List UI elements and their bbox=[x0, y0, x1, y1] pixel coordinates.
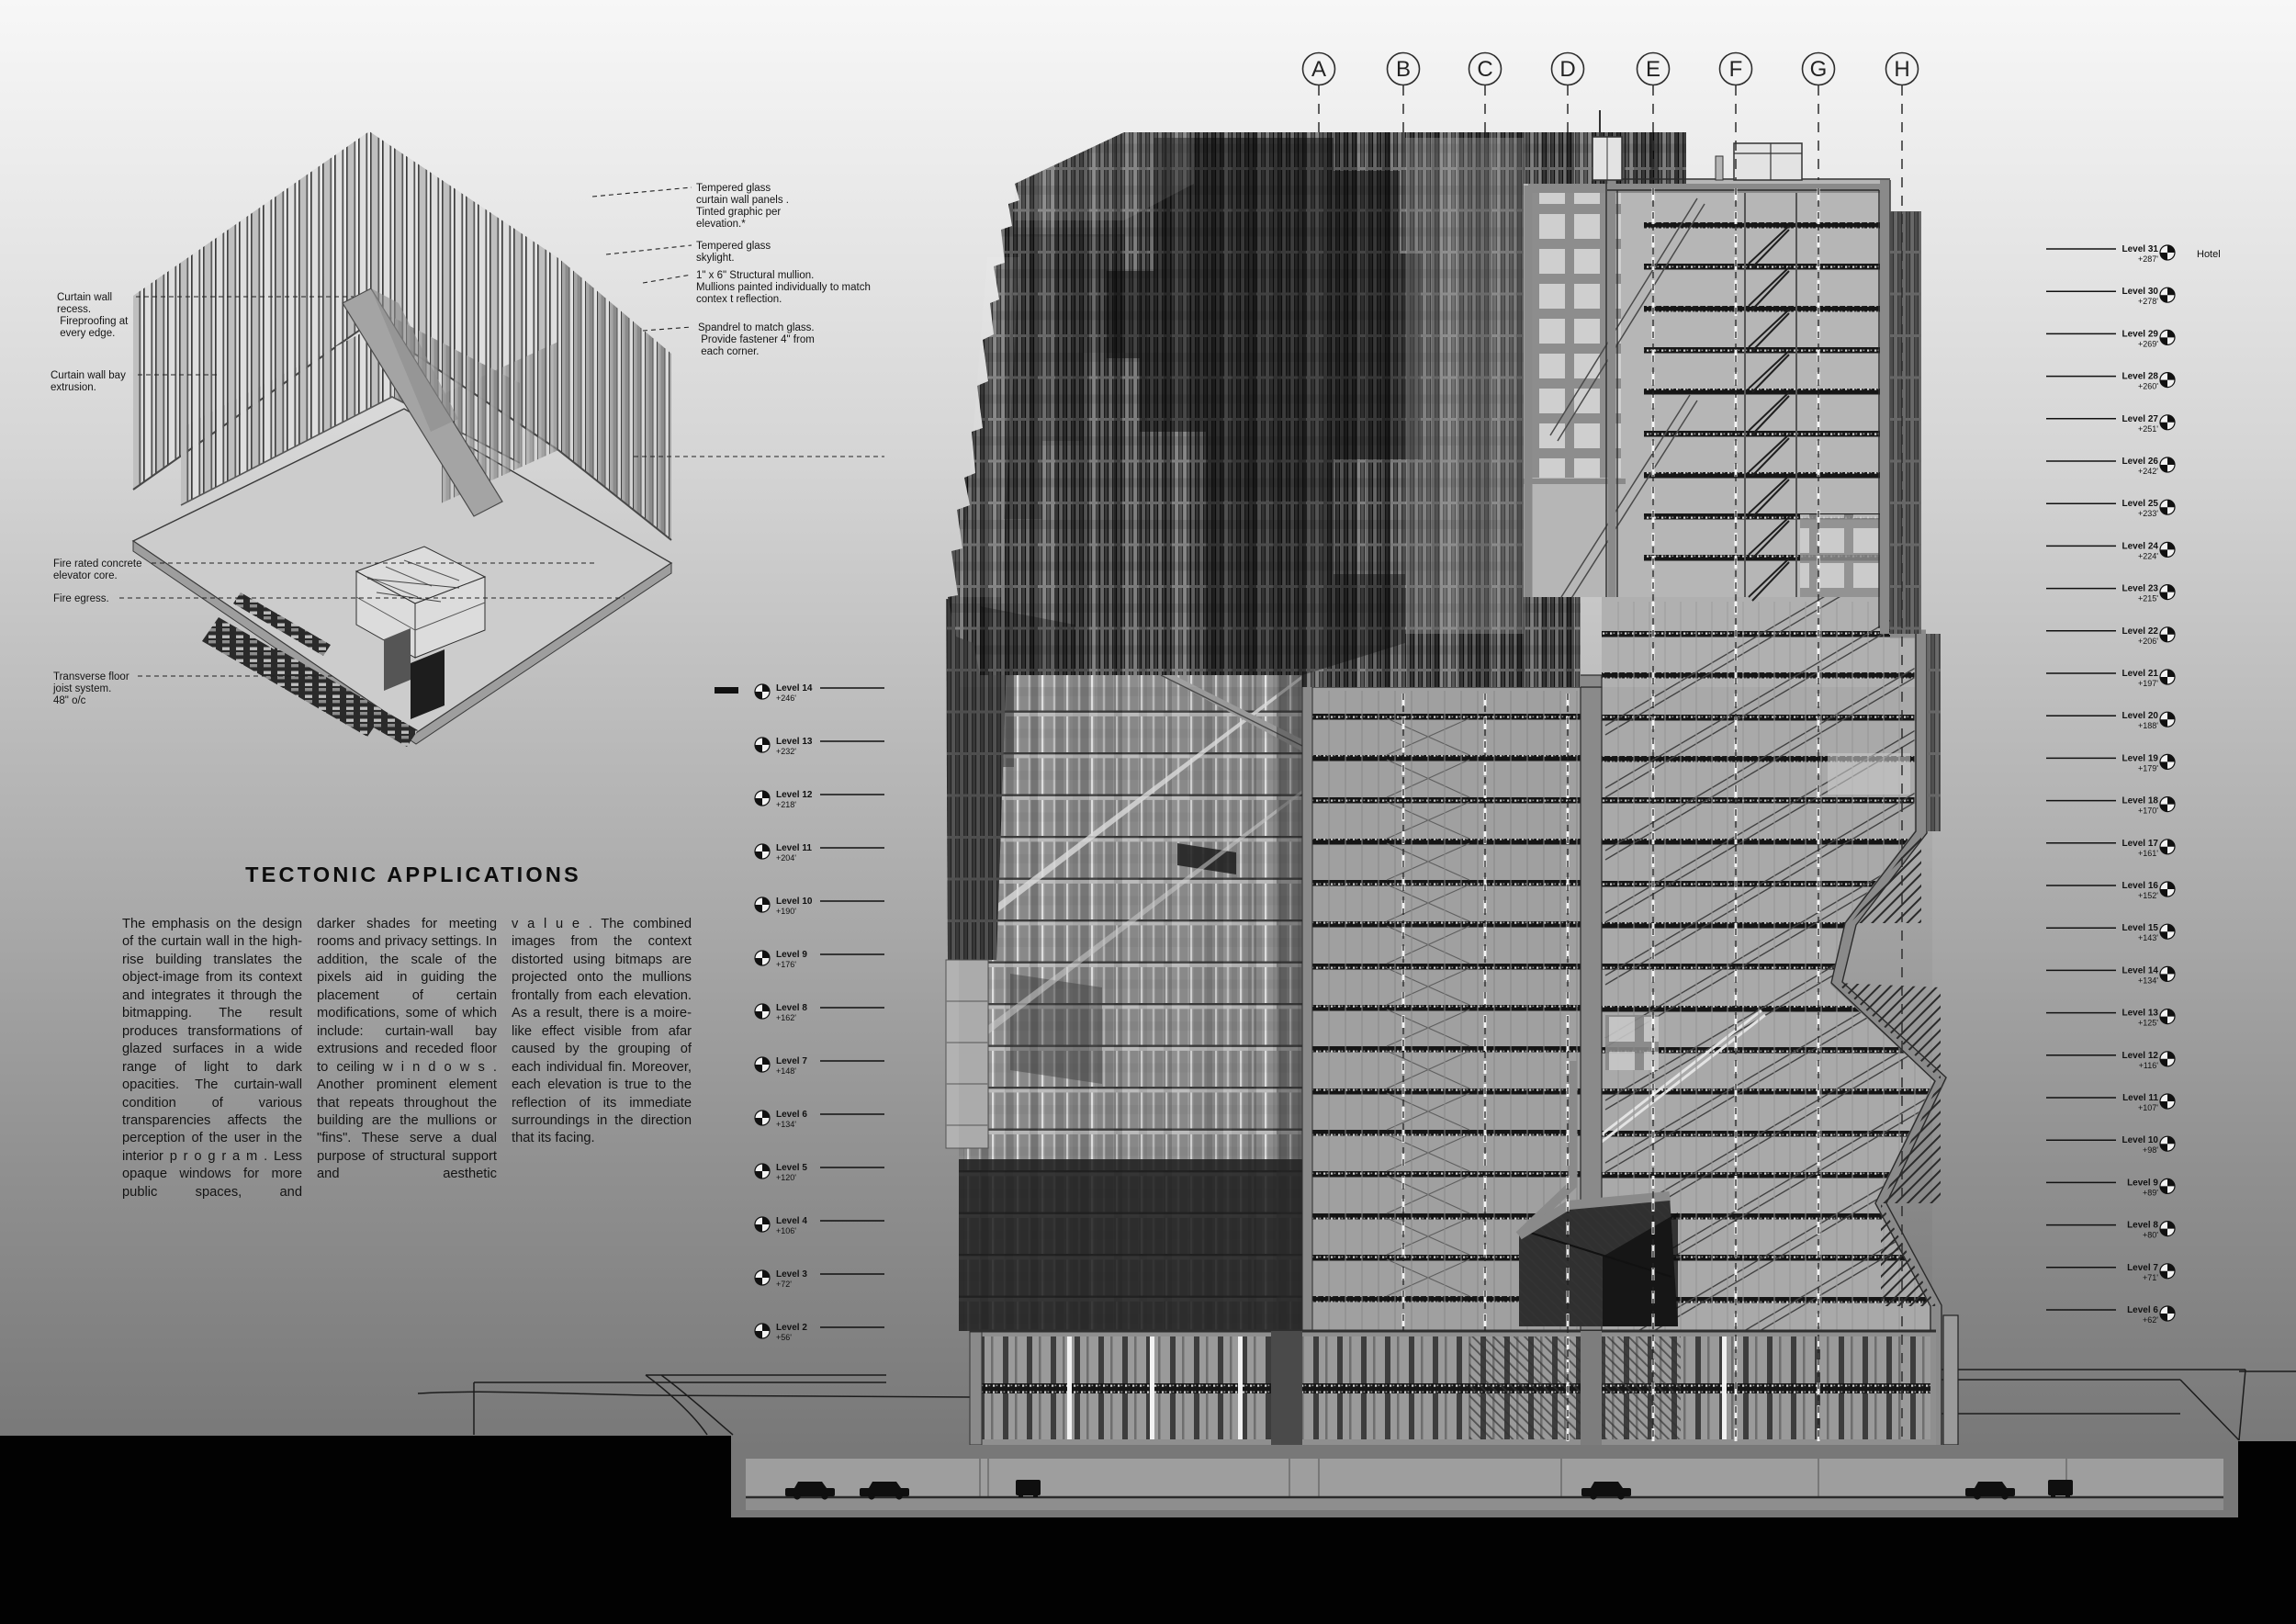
svg-text:Level 10: Level 10 bbox=[776, 897, 813, 907]
svg-text:+218': +218' bbox=[776, 800, 796, 809]
svg-text:Tempered glassskylight.: Tempered glassskylight. bbox=[696, 241, 771, 264]
svg-text:G: G bbox=[1810, 57, 1828, 82]
svg-text:+134': +134' bbox=[2138, 976, 2158, 985]
svg-text:Level 16: Level 16 bbox=[2122, 881, 2159, 891]
svg-text:Level 12: Level 12 bbox=[2122, 1051, 2159, 1061]
svg-text:Fire egress.: Fire egress. bbox=[53, 593, 109, 604]
svg-text:+176': +176' bbox=[776, 960, 796, 969]
svg-text:Level 23: Level 23 bbox=[2122, 584, 2159, 594]
svg-text:Level 8: Level 8 bbox=[2127, 1221, 2158, 1231]
svg-text:Fire rated concreteelevator co: Fire rated concreteelevator core. bbox=[53, 558, 142, 581]
svg-text:+204': +204' bbox=[776, 853, 796, 863]
svg-text:Level 21: Level 21 bbox=[2122, 669, 2159, 679]
svg-text:Level 27: Level 27 bbox=[2122, 414, 2159, 424]
svg-text:Level 20: Level 20 bbox=[2122, 711, 2159, 721]
svg-text:Level 9: Level 9 bbox=[2127, 1178, 2158, 1188]
svg-text:+120': +120' bbox=[776, 1173, 796, 1182]
svg-text:+233': +233' bbox=[2138, 509, 2158, 518]
svg-text:Level 6: Level 6 bbox=[2127, 1305, 2158, 1315]
svg-text:Level 14: Level 14 bbox=[776, 683, 813, 694]
svg-text:+278': +278' bbox=[2138, 297, 2158, 306]
svg-text:Level 15: Level 15 bbox=[2122, 923, 2159, 933]
svg-text:H: H bbox=[1894, 57, 1909, 82]
svg-text:+89': +89' bbox=[2143, 1188, 2158, 1197]
svg-text:+206': +206' bbox=[2138, 637, 2158, 646]
svg-text:Level 9: Level 9 bbox=[776, 950, 807, 960]
svg-text:+80': +80' bbox=[2143, 1231, 2158, 1240]
svg-text:Curtain wall bayextrusion.: Curtain wall bayextrusion. bbox=[51, 370, 126, 393]
svg-text:Level 17: Level 17 bbox=[2122, 839, 2159, 849]
svg-text:Level 18: Level 18 bbox=[2122, 796, 2159, 806]
svg-text:Transverse floorjoist system.4: Transverse floorjoist system.48" o/c bbox=[52, 671, 129, 706]
svg-text:+251': +251' bbox=[2138, 424, 2158, 434]
svg-text:Level 28: Level 28 bbox=[2122, 372, 2159, 382]
svg-text:Level 13: Level 13 bbox=[2122, 1009, 2159, 1019]
svg-text:Level 26: Level 26 bbox=[2122, 457, 2159, 467]
svg-text:+98': +98' bbox=[2143, 1145, 2158, 1155]
svg-text:Level 25: Level 25 bbox=[2122, 499, 2159, 509]
svg-text:Level 31: Level 31 bbox=[2122, 244, 2159, 254]
svg-text:Level 24: Level 24 bbox=[2122, 541, 2159, 551]
svg-text:+161': +161' bbox=[2138, 849, 2158, 858]
svg-text:+246': +246' bbox=[776, 694, 796, 703]
svg-text:+197': +197' bbox=[2138, 679, 2158, 688]
svg-text:Level 8: Level 8 bbox=[776, 1003, 807, 1013]
svg-text:Level 11: Level 11 bbox=[776, 843, 812, 853]
svg-text:E: E bbox=[1646, 57, 1660, 82]
svg-text:Level 10: Level 10 bbox=[2122, 1135, 2159, 1145]
svg-text:+148': +148' bbox=[776, 1066, 796, 1076]
svg-text:+106': +106' bbox=[776, 1226, 796, 1235]
svg-text:Level 11: Level 11 bbox=[2122, 1093, 2158, 1103]
svg-text:Level 19: Level 19 bbox=[2122, 753, 2159, 763]
svg-text:Hotel: Hotel bbox=[2197, 249, 2221, 260]
svg-text:+287': +287' bbox=[2138, 254, 2158, 264]
svg-text:+62': +62' bbox=[2143, 1315, 2158, 1325]
svg-text:C: C bbox=[1477, 57, 1492, 82]
svg-text:+224': +224' bbox=[2138, 551, 2158, 560]
svg-text:B: B bbox=[1396, 57, 1411, 82]
svg-text:F: F bbox=[1729, 57, 1743, 82]
svg-text:+215': +215' bbox=[2138, 594, 2158, 603]
svg-text:D: D bbox=[1559, 57, 1575, 82]
svg-text:1" x 6" Structural mullion.Mul: 1" x 6" Structural mullion.Mullions pain… bbox=[696, 270, 871, 305]
svg-text:Level 5: Level 5 bbox=[776, 1163, 807, 1173]
svg-text:Spandrel to match glass. Provi: Spandrel to match glass. Provide fastene… bbox=[698, 322, 815, 357]
svg-text:+152': +152' bbox=[2138, 891, 2158, 900]
svg-text:Level 7: Level 7 bbox=[776, 1056, 807, 1066]
svg-text:Level 7: Level 7 bbox=[2127, 1263, 2158, 1273]
svg-text:+72': +72' bbox=[776, 1280, 792, 1289]
svg-text:+162': +162' bbox=[776, 1013, 796, 1022]
svg-text:+116': +116' bbox=[2139, 1061, 2159, 1070]
svg-text:+71': +71' bbox=[2143, 1273, 2158, 1282]
svg-text:+242': +242' bbox=[2138, 467, 2158, 476]
svg-text:+232': +232' bbox=[776, 747, 796, 756]
svg-text:+170': +170' bbox=[2138, 806, 2158, 816]
svg-text:Curtain wallrecess. Fireproofi: Curtain wallrecess. Fireproofing at ever… bbox=[57, 292, 129, 339]
svg-text:+269': +269' bbox=[2138, 339, 2158, 348]
svg-text:+56': +56' bbox=[776, 1333, 792, 1342]
svg-text:Level 30: Level 30 bbox=[2122, 287, 2159, 297]
svg-text:+179': +179' bbox=[2138, 763, 2158, 773]
svg-text:+143': +143' bbox=[2138, 933, 2158, 942]
svg-text:Tempered glasscurtain wall pan: Tempered glasscurtain wall panels .Tinte… bbox=[696, 183, 789, 230]
svg-text:Level 12: Level 12 bbox=[776, 790, 813, 800]
svg-text:+260': +260' bbox=[2138, 382, 2158, 391]
svg-text:Level 29: Level 29 bbox=[2122, 329, 2159, 339]
svg-text:+190': +190' bbox=[776, 907, 796, 916]
svg-text:Level 14: Level 14 bbox=[2122, 965, 2159, 976]
svg-text:Level 4: Level 4 bbox=[776, 1216, 807, 1226]
svg-text:Level 2: Level 2 bbox=[776, 1323, 807, 1333]
svg-text:+125': +125' bbox=[2138, 1019, 2158, 1028]
svg-text:+134': +134' bbox=[776, 1120, 796, 1129]
svg-text:Level 13: Level 13 bbox=[776, 737, 813, 747]
svg-text:Level 6: Level 6 bbox=[776, 1110, 807, 1120]
svg-text:Level 22: Level 22 bbox=[2122, 626, 2159, 637]
svg-text:+107': +107' bbox=[2138, 1103, 2158, 1112]
svg-text:A: A bbox=[1311, 57, 1326, 82]
svg-text:Level 3: Level 3 bbox=[776, 1269, 807, 1280]
svg-text:+188': +188' bbox=[2138, 721, 2158, 730]
